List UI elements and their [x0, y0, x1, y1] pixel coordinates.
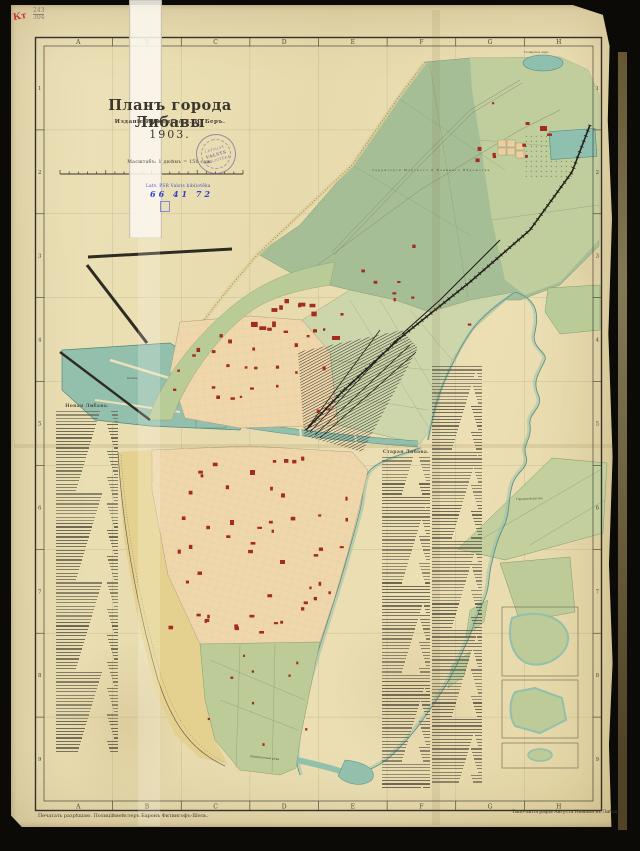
index-entry: [382, 533, 430, 534]
index-entry: [432, 603, 482, 604]
index-entry: [432, 758, 482, 759]
index-entry: [432, 376, 482, 377]
building-mark: [182, 516, 186, 520]
index-entry: [432, 491, 482, 492]
building-mark: [252, 348, 255, 351]
grid-letter: 5: [38, 422, 42, 428]
index-entry: [432, 590, 482, 591]
index-entry: [56, 500, 118, 501]
index-entry: [432, 511, 482, 512]
printer-imprint: Типо-литографія Августа Нимана въ Либавѣ…: [512, 810, 622, 815]
index-entry: [56, 451, 118, 452]
building-mark: [270, 487, 273, 491]
index-entry: [382, 536, 430, 537]
index-entry: [432, 781, 482, 782]
index-entry: [382, 632, 430, 633]
building-mark: [206, 526, 210, 529]
grid-letter: H: [556, 39, 561, 46]
index-entry: [382, 648, 430, 649]
index-entry: [432, 399, 482, 400]
index-entry: [382, 589, 430, 590]
building-mark: [292, 460, 296, 464]
index-entry: [432, 613, 482, 614]
index-entry: [432, 544, 482, 545]
index-entry: [382, 464, 430, 465]
index-entry: [382, 704, 430, 705]
building-mark: [318, 514, 321, 516]
building-mark: [411, 297, 414, 299]
map-subtitle: Изданіе Инженера Е. И. Беръ.: [90, 119, 250, 125]
index-entry: [56, 698, 118, 699]
tosmare-label: Тосмарское озеро: [524, 50, 549, 54]
index-entry: [432, 373, 482, 374]
index-entry: [382, 701, 430, 702]
inventory-number: 66 41 72: [150, 189, 213, 199]
index-entry: [432, 762, 482, 763]
index-entry: [432, 564, 482, 565]
index-entry: [56, 464, 118, 465]
index-entry: [432, 504, 482, 505]
index-entry: [432, 498, 482, 499]
building-mark: [289, 675, 291, 677]
building-mark: [220, 334, 223, 337]
index-entry: [432, 528, 482, 529]
index-entry: [432, 653, 482, 654]
building-mark: [547, 134, 552, 136]
index-entry: [382, 777, 430, 778]
index-entry: [432, 465, 482, 466]
index-entry: [56, 503, 118, 504]
building-mark: [307, 335, 310, 337]
index-entry: [432, 719, 482, 720]
building-mark: [295, 343, 298, 347]
building-mark: [248, 550, 253, 553]
building-mark: [173, 389, 176, 391]
index-entry: [432, 448, 482, 449]
station-building: [332, 336, 340, 340]
index-entry: [56, 662, 118, 663]
building-mark: [212, 350, 216, 353]
grid-letter: 7: [38, 589, 42, 595]
grid-letter: 3: [596, 254, 600, 260]
building-mark: [251, 322, 258, 327]
index-entry: [382, 546, 430, 547]
index-entry: [432, 402, 482, 403]
index-entry: [432, 696, 482, 697]
index-entry: [56, 737, 118, 738]
index-entry: [56, 441, 118, 442]
index-entry: [56, 536, 118, 537]
index-entry: [432, 778, 482, 779]
index-entry: [56, 596, 118, 597]
building-mark: [267, 594, 272, 597]
index-entry: [432, 501, 482, 502]
index-entry: [382, 757, 430, 758]
index-entry: [432, 725, 482, 726]
index-entry: [382, 520, 430, 521]
index-entry: [432, 742, 482, 743]
index-entry: [432, 435, 482, 436]
building-mark: [273, 460, 276, 463]
index-entry: [56, 741, 118, 742]
index-entry: [382, 688, 430, 689]
index-entry: [56, 668, 118, 669]
index-entry: [432, 412, 482, 413]
index-entry: [432, 382, 482, 383]
building-mark: [198, 572, 203, 575]
index-entry: [382, 530, 430, 531]
building-mark: [198, 471, 203, 474]
building-mark: [279, 305, 283, 310]
handwritten-shelf-number: 243 304: [33, 8, 44, 21]
building-mark: [189, 545, 193, 549]
index-entry: [432, 531, 482, 532]
building-mark: [310, 304, 316, 308]
index-entry: [56, 695, 118, 696]
grid-letter: 4: [596, 338, 600, 344]
index-entry: [432, 626, 482, 627]
index-entry: [56, 540, 118, 541]
building-mark: [177, 370, 180, 372]
index-entry: [382, 473, 430, 474]
index-entry: [56, 556, 118, 557]
lake-island-insets: [502, 607, 578, 768]
index-entry: [382, 615, 430, 616]
index-entry: [56, 632, 118, 633]
index-entry: [382, 770, 430, 771]
grid-letter: 7: [596, 589, 600, 595]
building-mark: [226, 364, 229, 367]
index-entry: [56, 576, 118, 577]
index-entry: [56, 467, 118, 468]
index-entry: [56, 638, 118, 639]
index-entry: [382, 780, 430, 781]
index-entry: [432, 669, 482, 670]
index-entry: [432, 514, 482, 515]
index-entry: [432, 455, 482, 456]
building-mark: [345, 497, 347, 501]
index-entry: [56, 721, 118, 722]
index-entry: [432, 524, 482, 525]
index-header: Новая Либава.: [56, 404, 118, 409]
index-entry: [432, 488, 482, 489]
index-entry: [382, 698, 430, 699]
index-entry: [382, 721, 430, 722]
index-entry: [432, 656, 482, 657]
index-entry: [432, 699, 482, 700]
building-mark: [251, 542, 256, 545]
index-entry: [56, 648, 118, 649]
index-entry: [432, 472, 482, 473]
index-entry: [432, 748, 482, 749]
index-entry: [432, 768, 482, 769]
index-entry: [56, 731, 118, 732]
index-entry: [56, 533, 118, 534]
index-entry: [382, 539, 430, 540]
index-entry: [56, 474, 118, 475]
index-entry: [432, 554, 482, 555]
index-entry: [382, 559, 430, 560]
index-entry: [56, 543, 118, 544]
index-entry: [432, 643, 482, 644]
building-mark: [319, 548, 323, 551]
index-entry: [382, 592, 430, 593]
index-entry: [56, 718, 118, 719]
index-entry: [432, 732, 482, 733]
building-mark: [522, 144, 526, 147]
building-mark: [262, 743, 264, 746]
index-entry: [432, 706, 482, 707]
index-entry: [56, 431, 118, 432]
index-entry: [432, 676, 482, 677]
building-mark: [328, 408, 331, 410]
building-mark: [317, 410, 320, 413]
building-mark: [189, 491, 193, 495]
index-entry: [432, 580, 482, 581]
index-entry: [382, 602, 430, 603]
building-mark: [301, 457, 304, 461]
index-entry: [382, 741, 430, 742]
index-entry: [382, 490, 430, 491]
index-entry: [56, 569, 118, 570]
index-entry: [432, 432, 482, 433]
building-mark: [478, 147, 482, 151]
index-entry: [56, 480, 118, 481]
index-entry: [432, 508, 482, 509]
building-mark: [272, 308, 278, 312]
index-header: Старая Либава.: [382, 450, 430, 455]
building-mark: [468, 324, 472, 326]
library-ink-stamp: Latv. PSR Valsts bibliotēka 66 41 72: [146, 183, 213, 212]
index-entry: [432, 458, 482, 459]
map-title: Планъ города Либавы: [90, 97, 250, 131]
index-entry: [382, 619, 430, 620]
building-mark: [476, 158, 480, 162]
index-entry: [432, 425, 482, 426]
index-entry: [56, 520, 118, 521]
grid-letter: 6: [596, 505, 600, 511]
index-entry: [432, 537, 482, 538]
index-entry: [382, 625, 430, 626]
index-entry: [56, 606, 118, 607]
building-mark: [341, 313, 344, 316]
building-mark: [276, 385, 279, 388]
building-mark: [276, 366, 279, 369]
building-mark: [208, 718, 210, 720]
building-mark: [228, 340, 232, 344]
building-mark: [296, 662, 298, 665]
index-entry: [432, 752, 482, 753]
street-index-new-libava: Новая Либава.: [56, 404, 118, 754]
index-entry: [432, 597, 482, 598]
index-entry: [56, 658, 118, 659]
grid-letter: F: [419, 804, 423, 811]
index-entry: [432, 551, 482, 552]
index-entry: [56, 563, 118, 564]
building-mark: [178, 550, 181, 554]
index-entry: [432, 468, 482, 469]
index-entry: [432, 518, 482, 519]
index-entry: [56, 421, 118, 422]
index-entry: [432, 567, 482, 568]
index-entry: [432, 557, 482, 558]
index-entry: [432, 689, 482, 690]
index-entry: [56, 484, 118, 485]
index-entry: [382, 708, 430, 709]
index-entry: [56, 675, 118, 676]
index-entry: [432, 735, 482, 736]
index-entry: [432, 617, 482, 618]
index-entry: [56, 523, 118, 524]
index-entry: [382, 783, 430, 784]
building-mark: [226, 485, 229, 489]
index-entry: [56, 477, 118, 478]
index-entry: [432, 683, 482, 684]
building-mark: [284, 459, 288, 463]
building-mark: [309, 587, 311, 590]
index-entry: [56, 517, 118, 518]
index-entry: [432, 620, 482, 621]
index-entry: [56, 424, 118, 425]
index-entry: [56, 609, 118, 610]
building-mark: [192, 354, 196, 356]
index-entry: [56, 652, 118, 653]
index-entry: [382, 737, 430, 738]
index-entry: [382, 500, 430, 501]
index-entry: [382, 566, 430, 567]
building-mark: [267, 328, 272, 331]
index-entry: [432, 650, 482, 651]
index-entry: [56, 701, 118, 702]
index-entry: [56, 589, 118, 590]
building-mark: [259, 326, 266, 330]
index-entry: [382, 483, 430, 484]
index-entry: [382, 553, 430, 554]
building-mark: [231, 397, 235, 400]
grid-letter: 9: [596, 757, 600, 763]
index-entry: [56, 655, 118, 656]
index-entry: [382, 691, 430, 692]
grid-letter: G: [488, 804, 493, 811]
building-mark: [291, 517, 296, 521]
index-entry: [382, 457, 430, 458]
building-mark: [340, 546, 344, 548]
index-entry: [382, 747, 430, 748]
building-mark: [314, 597, 317, 600]
index-entry: [432, 445, 482, 446]
index-entry: [432, 429, 482, 430]
index-entry: [56, 526, 118, 527]
index-entry: [382, 665, 430, 666]
building-mark: [207, 615, 210, 619]
index-entry: [432, 481, 482, 482]
index-entry: [432, 772, 482, 773]
index-entry: [432, 722, 482, 723]
index-entry: [432, 659, 482, 660]
grid-letter: G: [488, 39, 493, 46]
index-entry: [432, 561, 482, 562]
index-entry: [382, 652, 430, 653]
index-entry: [432, 765, 482, 766]
index-entry: [432, 587, 482, 588]
building-mark: [394, 298, 396, 301]
index-entry: [432, 775, 482, 776]
index-entry: [56, 645, 118, 646]
building-mark: [525, 155, 528, 158]
building-mark: [274, 622, 278, 624]
index-entry: [56, 497, 118, 498]
index-entry: [382, 595, 430, 596]
building-mark: [493, 153, 496, 157]
index-entry: [56, 447, 118, 448]
index-entry: [382, 655, 430, 656]
index-entry: [382, 774, 430, 775]
index-entry: [382, 694, 430, 695]
index-entry: [56, 434, 118, 435]
index-entry: [56, 714, 118, 715]
building-mark: [250, 387, 254, 389]
building-mark: [169, 626, 174, 630]
inset-island: [510, 614, 568, 665]
building-mark: [284, 331, 288, 333]
index-entry: [56, 470, 118, 471]
index-entry: [56, 711, 118, 712]
building-mark: [197, 348, 201, 352]
building-mark: [186, 581, 189, 584]
index-entry: [432, 439, 482, 440]
street-index-continued: [432, 366, 482, 785]
index-entry: [432, 673, 482, 674]
grid-letter: E: [351, 804, 355, 811]
index-entry: [382, 764, 430, 765]
index-entry: [382, 556, 430, 557]
index-entry: [56, 599, 118, 600]
tosmare-lake: [523, 55, 563, 71]
index-entry: [382, 754, 430, 755]
index-entry: [382, 612, 430, 613]
index-entry: [432, 389, 482, 390]
index-entry: [382, 497, 430, 498]
index-entry: [382, 787, 430, 788]
index-entry: [432, 366, 482, 367]
building-mark: [272, 530, 274, 533]
index-entry: [382, 572, 430, 573]
grid-letter: 1: [38, 86, 41, 92]
building-mark: [285, 299, 290, 303]
index-entry: [56, 734, 118, 735]
building-mark: [254, 367, 257, 370]
building-mark: [323, 328, 325, 331]
index-entry: [56, 427, 118, 428]
index-entry: [56, 510, 118, 511]
index-entry: [432, 409, 482, 410]
index-entry: [432, 640, 482, 641]
index-entry: [56, 602, 118, 603]
building-mark: [257, 527, 262, 529]
index-entry: [56, 559, 118, 560]
index-entry: [432, 452, 482, 453]
index-entry: [432, 392, 482, 393]
index-entry: [56, 592, 118, 593]
index-entry: [432, 607, 482, 608]
inset-island: [510, 688, 566, 733]
index-entry: [56, 708, 118, 709]
index-entry: [382, 506, 430, 507]
censor-permission-note: Печатать разрѣшаю. Полицiймейстеръ Барон…: [38, 813, 208, 819]
index-entry: [56, 530, 118, 531]
index-entry: [432, 745, 482, 746]
index-entry: [432, 386, 482, 387]
